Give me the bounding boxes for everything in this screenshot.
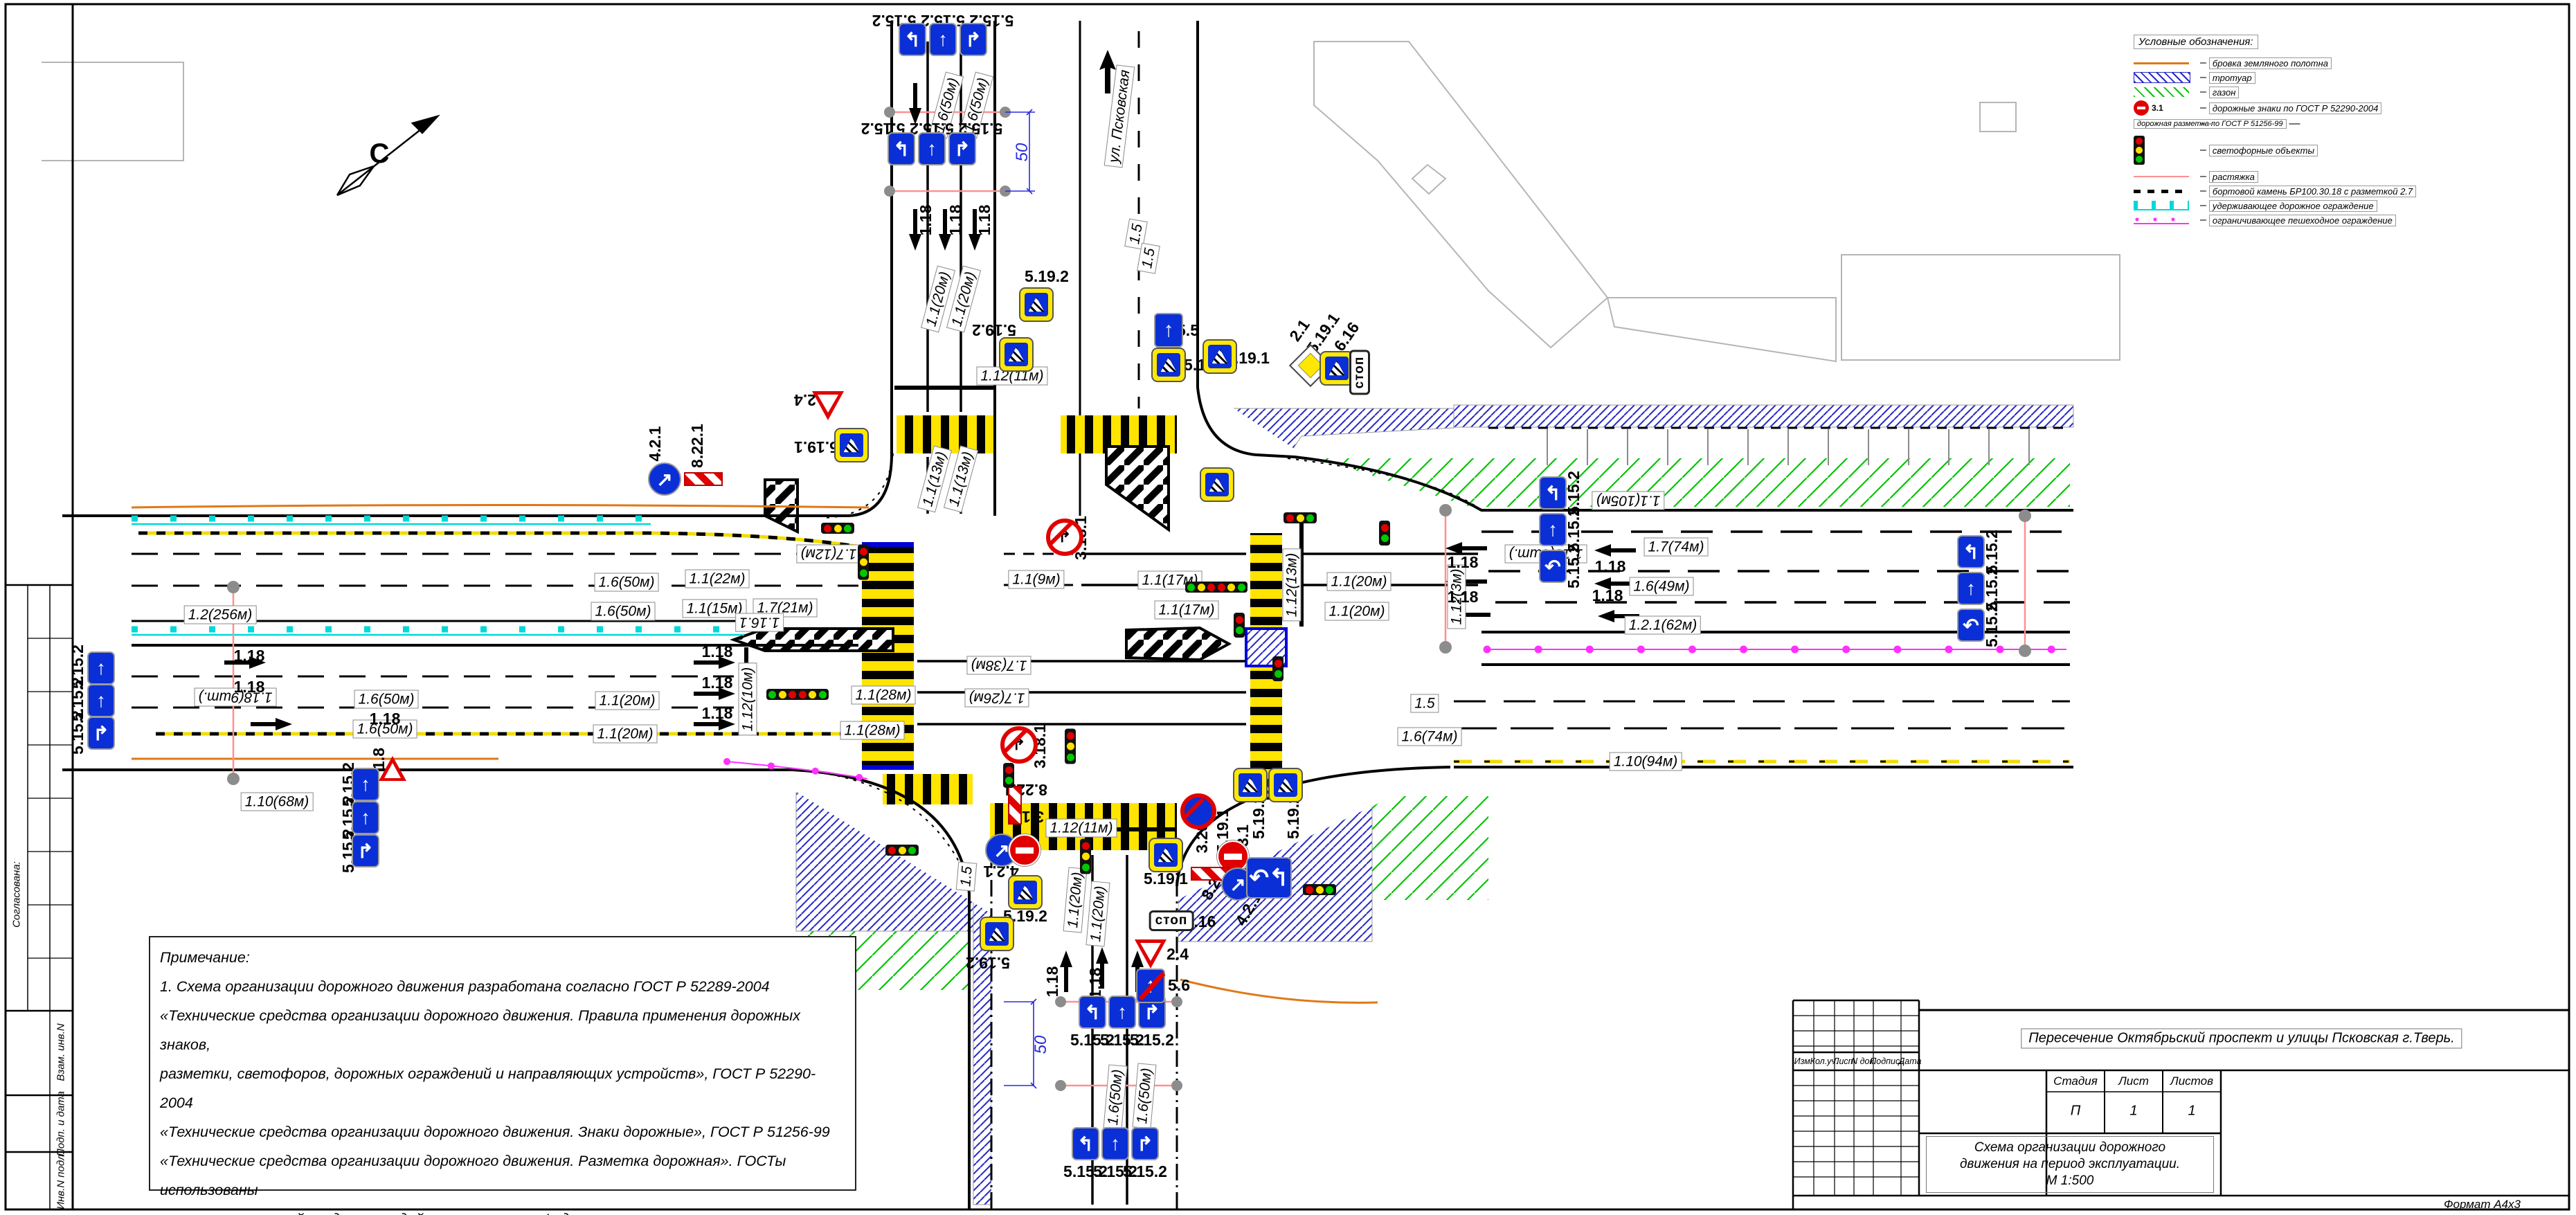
sign-number-label: 1.18 bbox=[947, 205, 964, 236]
marking-label: 1.5 bbox=[1410, 694, 1439, 713]
traffic-light-icon bbox=[885, 845, 919, 856]
titleblock-object: Пересечение Октябрьский проспект и улицы… bbox=[2021, 1029, 2462, 1049]
legend-swatch-uderzh bbox=[2134, 201, 2197, 210]
rev-header: Дата bbox=[1899, 1056, 1922, 1066]
traffic-sign-5152R-icon: ↱ bbox=[1131, 1127, 1159, 1160]
legend-item: –ограничивающее пешеходное ограждение bbox=[2134, 214, 2573, 226]
legend-item: –бровка земляного полотна bbox=[2134, 57, 2573, 69]
traffic-sign-519-icon bbox=[1200, 467, 1234, 502]
marking-label: 1.1(20м) bbox=[595, 692, 660, 710]
marking-label: 1.6(50м) bbox=[354, 690, 419, 709]
legend-swatch-svetofor bbox=[2134, 136, 2197, 165]
traffic-light-icon bbox=[1303, 884, 1336, 895]
traffic-sign-5152L-icon: ↰ bbox=[1079, 996, 1106, 1029]
sign-number-label: 1.18 bbox=[234, 678, 265, 695]
legend-item: –тротуар bbox=[2134, 71, 2573, 84]
traffic-sign-616-icon: стоп bbox=[1349, 350, 1370, 395]
sign-number-label: 1.18 bbox=[702, 705, 733, 721]
sign-number-label: 8.22.1 bbox=[689, 424, 705, 468]
sign-number-label: 1.18 bbox=[370, 710, 401, 727]
note-line: 1. Схема организации дорожного движения … bbox=[160, 972, 845, 1001]
marking-label: 1.1(28м) bbox=[840, 721, 905, 740]
marking-label: 1.1(22м) bbox=[685, 570, 750, 588]
legend-title: Условные обозначения: bbox=[2134, 35, 2258, 49]
traffic-light-icon bbox=[821, 523, 854, 534]
sign-number-label: 5.19.2 bbox=[1025, 268, 1069, 285]
marking-label: 1.5 bbox=[1137, 242, 1160, 273]
notes-box: Примечание: 1. Схема организации дорожно… bbox=[149, 936, 856, 1191]
traffic-light-icon bbox=[1080, 839, 1091, 874]
traffic-sign-5152S-icon: ↑ bbox=[918, 132, 946, 165]
stage-header: Стадия bbox=[2053, 1074, 2098, 1088]
sign-number-label: 5.6 bbox=[1168, 977, 1190, 993]
traffic-light-icon bbox=[1065, 729, 1076, 764]
legend-item: 3.1–дорожные знаки по ГОСТ Р 52290-2004 bbox=[2134, 100, 2573, 116]
sign-number-label: 1.18 bbox=[1448, 554, 1479, 570]
marking-label: 1.1(105м) bbox=[1592, 492, 1665, 510]
traffic-sign-519-icon bbox=[1151, 348, 1186, 382]
legend-label: газон bbox=[2209, 87, 2240, 98]
legend-label: бровка земляного полотна bbox=[2209, 57, 2332, 69]
sign-number-label: 4.2.1 bbox=[647, 426, 663, 461]
marking-label: 1.1(20м) bbox=[1086, 881, 1110, 947]
sign-number-label: 1.18 bbox=[1595, 558, 1626, 575]
traffic-sign-5152L-icon: ↰ bbox=[899, 23, 926, 56]
traffic-sign-8221v-icon bbox=[1008, 786, 1022, 825]
marking-label: 1.7(12м) bbox=[797, 545, 861, 564]
marking-label: 1.6(74м) bbox=[1398, 728, 1462, 746]
traffic-sign-5152S-icon: ↑ bbox=[352, 768, 379, 801]
traffic-sign-5152U-icon: ↶ bbox=[1957, 609, 1985, 642]
traffic-sign-24-icon bbox=[812, 391, 844, 420]
traffic-sign-421-icon: ↗ bbox=[648, 462, 681, 496]
sign-number-label: 5.19.2 bbox=[972, 322, 1016, 339]
sign-number-label: 1.18 bbox=[1087, 968, 1104, 999]
traffic-sign-8221h-icon bbox=[684, 472, 723, 486]
marking-label: 1.6(50м) bbox=[595, 573, 659, 592]
sign-number-label: 5.19.1 bbox=[1144, 870, 1188, 887]
legend-item: –бортовой камень БР100.30.18 с разметкой… bbox=[2134, 185, 2573, 197]
stamp-label: Взам. инв.N bbox=[55, 1023, 67, 1081]
traffic-sign-5152R-icon: ↱ bbox=[948, 132, 976, 165]
legend: Условные обозначения: –бровка земляного … bbox=[2134, 35, 2573, 228]
marking-label: 1.12(11м) bbox=[1045, 819, 1117, 838]
traffic-sign-55-icon: ↑ bbox=[1154, 313, 1183, 348]
traffic-light-icon bbox=[1272, 656, 1284, 681]
sign-number-label: 1.18 bbox=[1448, 588, 1479, 605]
traffic-sign-5152L-icon: ↰ bbox=[1072, 1127, 1099, 1160]
traffic-sign-5152R-icon: ↱ bbox=[87, 717, 115, 750]
legend-label: удерживающее дорожное ограждение bbox=[2209, 200, 2377, 212]
traffic-sign-5152S-icon: ↑ bbox=[1539, 513, 1567, 546]
marking-label: 1.1(20м) bbox=[593, 725, 658, 744]
legend-label: растяжка bbox=[2209, 171, 2258, 183]
legend-label: бортовой камень БР100.30.18 с разметкой … bbox=[2209, 186, 2416, 197]
marking-label: 1.7(26м) bbox=[965, 689, 1029, 708]
traffic-sign-5152S-icon: ↑ bbox=[1101, 1127, 1129, 1160]
traffic-sign-31-icon bbox=[1009, 834, 1041, 866]
traffic-sign-5152L-icon: ↰ bbox=[1957, 535, 1985, 568]
note-line: с учетом изменений введенных в действие … bbox=[160, 1205, 845, 1215]
traffic-sign-5152L-icon: ↰ bbox=[888, 132, 915, 165]
marking-label: 1.6(50м) bbox=[1104, 1065, 1128, 1131]
traffic-sign-616-icon: стоп bbox=[1149, 910, 1194, 931]
sign-number-label: 5.15.2 bbox=[1983, 603, 2000, 647]
sign-number-label: 50 bbox=[1014, 143, 1031, 162]
marking-label: 1.7(38м) bbox=[967, 656, 1032, 675]
traffic-sign-519-icon bbox=[1019, 287, 1054, 322]
legend-label: дорожные знаки по ГОСТ Р 52290-2004 bbox=[2209, 102, 2381, 114]
traffic-sign-519-icon bbox=[834, 428, 869, 462]
sign-number-label: 1.18 bbox=[234, 647, 265, 664]
traffic-sign-519-icon bbox=[980, 917, 1014, 951]
north-letter: С bbox=[370, 145, 390, 162]
titleblock-docname: Схема организации дорожногодвижения на п… bbox=[1926, 1136, 2214, 1193]
legend-item: –растяжка bbox=[2134, 170, 2573, 183]
traffic-sign-5152S-icon: ↑ bbox=[1957, 572, 1985, 605]
traffic-sign-519-icon bbox=[1203, 339, 1237, 374]
stage-header: Листов bbox=[2170, 1074, 2213, 1088]
stage-value: 1 bbox=[2188, 1104, 2195, 1119]
sign-number-label: 5.19.2 bbox=[966, 955, 1010, 971]
sign-number-label: 1.18 bbox=[917, 205, 934, 236]
marking-label: 1.12(10м) bbox=[739, 663, 757, 736]
traffic-sign-3181-icon: ↱ bbox=[1000, 726, 1038, 764]
legend-item: –светофорные объекты bbox=[2134, 136, 2573, 165]
marking-label: ул. Псковская bbox=[1104, 64, 1135, 168]
legend-label: ограничивающее пешеходное ограждение bbox=[2209, 215, 2396, 226]
traffic-light-icon bbox=[766, 689, 829, 700]
stage-header: Лист bbox=[2118, 1074, 2149, 1088]
stamp-label: Инв.N подл. bbox=[55, 1151, 67, 1209]
traffic-light-icon bbox=[1185, 582, 1248, 593]
legend-swatch-rastyazhka bbox=[2134, 176, 2197, 177]
marking-label: 1.6(50м) bbox=[591, 602, 656, 621]
traffic-sign-5152S-icon: ↑ bbox=[352, 801, 379, 834]
marking-label: 1.1(20м) bbox=[1063, 867, 1088, 933]
traffic-sign-56-icon: ↑ bbox=[1136, 969, 1165, 1003]
traffic-sign-24-icon bbox=[1135, 939, 1167, 969]
legend-swatch-gazon bbox=[2134, 87, 2197, 97]
note-line: «Технические средства организации дорожн… bbox=[160, 1117, 845, 1146]
traffic-sign-5152S-icon: ↑ bbox=[87, 651, 115, 685]
marking-label: 1.12(13м) bbox=[1283, 549, 1301, 622]
sign-number-label: 50 bbox=[1033, 1036, 1050, 1054]
sign-number-label: 5.15.2 bbox=[1123, 1163, 1167, 1180]
stage-value: П bbox=[2071, 1104, 2081, 1119]
marking-label: 1.10(68м) bbox=[241, 793, 314, 811]
marking-label: 1.1(9м) bbox=[1008, 570, 1064, 589]
sign-number-label: 5.15.2 bbox=[1565, 544, 1582, 588]
traffic-sign-5152R-icon: ↱ bbox=[352, 834, 379, 867]
traffic-sign-519-icon bbox=[1008, 875, 1043, 910]
marking-label: 1.5 bbox=[956, 861, 977, 891]
marking-label: 1.6(50м) bbox=[1133, 1063, 1157, 1129]
marking-label: 1.1(20м) bbox=[1327, 573, 1391, 591]
traffic-sign-5152S-icon: ↑ bbox=[87, 684, 115, 717]
legend-label: светофорные объекты bbox=[2209, 145, 2318, 156]
legend-swatch-trotuar bbox=[2134, 72, 2197, 83]
traffic-light-icon bbox=[1284, 512, 1317, 523]
stamp-label: Подп. и дата bbox=[55, 1091, 67, 1156]
traffic-sign-5152R-icon: ↱ bbox=[960, 23, 987, 56]
marking-label: 1.2.1(62м) bbox=[1625, 616, 1701, 635]
sign-number-label: 5.15.2 bbox=[69, 710, 86, 755]
traffic-sign-519-icon bbox=[1233, 768, 1268, 802]
format-note: Формат А4х3 bbox=[2444, 1198, 2521, 1212]
legend-label bbox=[2209, 123, 2216, 125]
stamp-label: Согласована: bbox=[11, 861, 23, 928]
drawing-sheet: 1.2(256м)1.6(50м)1.6(50м)1.1(22м)1.1(15м… bbox=[0, 0, 2576, 1215]
legend-swatch-brovka bbox=[2134, 62, 2197, 64]
sign-number-label: 1.18 bbox=[1592, 587, 1623, 604]
legend-swatch-ogranich bbox=[2134, 216, 2197, 224]
marking-label: 1.6(49м) bbox=[1630, 577, 1694, 596]
sign-number-label: 3.1 bbox=[1022, 809, 1044, 825]
marking-label: 1.1(20м) bbox=[1325, 602, 1389, 621]
sign-number-label: 1.18 bbox=[702, 643, 733, 660]
traffic-sign-5152L-icon: ↰ bbox=[1539, 476, 1567, 510]
stage-value: 1 bbox=[2129, 1104, 2137, 1119]
legend-swatch-bortkamen bbox=[2134, 190, 2197, 193]
traffic-sign-5152S-icon: ↑ bbox=[929, 23, 957, 56]
traffic-sign-5152S-icon: ↑ bbox=[1108, 996, 1136, 1029]
note-line: «Технические средства организации дорожн… bbox=[160, 1146, 845, 1205]
traffic-light-icon bbox=[1379, 521, 1390, 546]
traffic-light-icon bbox=[1234, 613, 1245, 638]
legend-swatch-znak: 3.1 bbox=[2134, 100, 2197, 116]
marking-label: 1.1(17м) bbox=[1155, 601, 1219, 620]
legend-label: тротуар bbox=[2209, 72, 2255, 84]
sign-number-label: 2.4 bbox=[1167, 946, 1189, 962]
marking-label: 1.10(94м) bbox=[1610, 753, 1682, 771]
note-line: разметки, светофоров, дорожных ограждени… bbox=[160, 1059, 845, 1117]
note-line: «Технические средства организации дорожн… bbox=[160, 1001, 845, 1059]
sign-number-label: 1.18 bbox=[702, 674, 733, 691]
traffic-sign-18-icon bbox=[379, 756, 406, 781]
legend-item: дорожная разметка по ГОСТ Р 51256-99—– bbox=[2134, 118, 2573, 130]
traffic-sign-5152U-icon: ↶ bbox=[1539, 550, 1567, 583]
sign-number-label: 1.18 bbox=[1044, 966, 1061, 998]
marking-label: 1.16.1 bbox=[735, 613, 784, 632]
marking-label: 1.1(28м) bbox=[852, 686, 916, 705]
sign-number-label: 5.15.2 bbox=[1130, 1032, 1174, 1048]
traffic-sign-519-icon bbox=[1268, 768, 1303, 802]
legend-item: –удерживающее дорожное ограждение bbox=[2134, 199, 2573, 212]
sign-number-label: 1.18 bbox=[976, 205, 993, 236]
traffic-sign-3181-icon: ↱ bbox=[1046, 519, 1083, 556]
traffic-sign-519-icon bbox=[999, 337, 1034, 372]
traffic-light-icon bbox=[1003, 763, 1014, 788]
traffic-sign-519-icon bbox=[1149, 838, 1183, 872]
marking-label: 1.2(256м) bbox=[184, 606, 257, 624]
sign-number-label: 5.19.1 bbox=[794, 439, 838, 456]
marking-label: 1.7(74м) bbox=[1644, 538, 1709, 557]
traffic-light-icon bbox=[858, 545, 869, 580]
traffic-sign-5152P-icon: ↶↰ bbox=[1246, 857, 1292, 899]
legend-item: –газон bbox=[2134, 86, 2573, 98]
legend-swatch-razmetka: дорожная разметка по ГОСТ Р 51256-99— bbox=[2134, 118, 2197, 130]
notes-title: Примечание: bbox=[160, 943, 845, 972]
traffic-sign-328-icon bbox=[1180, 793, 1216, 829]
